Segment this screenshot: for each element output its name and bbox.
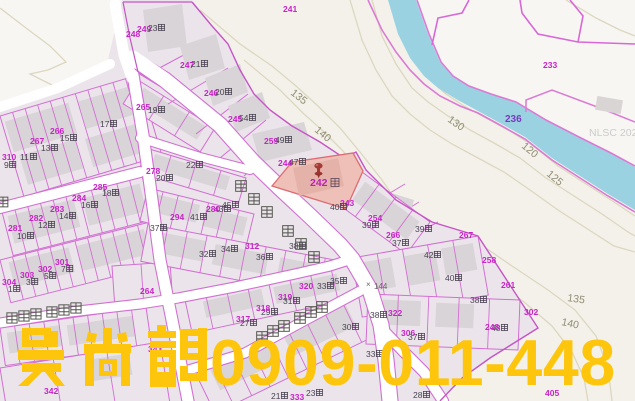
svg-text:317: 317 <box>236 314 250 324</box>
svg-text:39: 39 <box>415 224 425 234</box>
svg-text:54: 54 <box>239 113 249 123</box>
svg-text:304: 304 <box>2 277 16 287</box>
svg-text:17: 17 <box>100 119 110 129</box>
svg-text:312: 312 <box>245 241 259 251</box>
svg-text:45: 45 <box>222 200 232 210</box>
svg-text:0909-011-448: 0909-011-448 <box>210 327 616 399</box>
svg-text:135: 135 <box>567 292 586 306</box>
svg-text:49: 49 <box>275 135 285 145</box>
svg-text:37: 37 <box>150 223 160 233</box>
svg-text:47: 47 <box>289 157 299 167</box>
svg-text:33: 33 <box>317 281 327 291</box>
svg-text:302: 302 <box>524 307 538 317</box>
svg-text:282: 282 <box>29 213 43 223</box>
svg-text:294: 294 <box>170 212 184 222</box>
svg-text:21: 21 <box>191 59 201 69</box>
svg-text:265: 265 <box>136 102 150 112</box>
svg-text:318: 318 <box>256 303 270 313</box>
svg-text:22: 22 <box>186 160 196 170</box>
svg-text:236: 236 <box>505 114 522 125</box>
svg-text:42: 42 <box>424 250 434 260</box>
svg-text:41: 41 <box>190 212 200 222</box>
svg-text:39: 39 <box>362 220 372 230</box>
svg-text:37: 37 <box>392 238 402 248</box>
svg-text:34: 34 <box>221 244 231 254</box>
svg-text:280: 280 <box>206 204 220 214</box>
svg-text:258: 258 <box>482 255 496 265</box>
svg-text:261: 261 <box>501 280 515 290</box>
svg-text:11: 11 <box>20 152 29 162</box>
svg-text:302: 302 <box>38 264 52 274</box>
svg-text:319: 319 <box>278 292 292 302</box>
svg-text:35: 35 <box>330 276 340 286</box>
svg-text:242: 242 <box>310 177 328 189</box>
svg-text:144: 144 <box>374 282 388 291</box>
svg-text:342: 342 <box>44 386 58 396</box>
svg-text:248: 248 <box>126 29 140 39</box>
svg-text:32: 32 <box>199 249 209 259</box>
svg-text:284: 284 <box>72 193 86 203</box>
svg-text:303: 303 <box>20 270 34 280</box>
svg-text:38: 38 <box>370 310 380 320</box>
svg-text:NLSC 2025: NLSC 2025 <box>589 127 635 139</box>
svg-text:40: 40 <box>445 273 455 283</box>
svg-text:×: × <box>366 280 371 289</box>
svg-text:285: 285 <box>93 182 107 192</box>
svg-text:23: 23 <box>148 23 158 33</box>
svg-text:241: 241 <box>283 4 297 14</box>
svg-text:310: 310 <box>2 152 16 162</box>
svg-text:266: 266 <box>50 126 64 136</box>
svg-text:38: 38 <box>470 295 480 305</box>
svg-text:36: 36 <box>256 252 266 262</box>
svg-text:281: 281 <box>8 223 22 233</box>
svg-text:233: 233 <box>543 60 557 70</box>
svg-text:264: 264 <box>140 286 154 296</box>
svg-text:267: 267 <box>459 230 473 240</box>
svg-text:267: 267 <box>30 136 44 146</box>
svg-text:40: 40 <box>330 202 340 212</box>
svg-text:20: 20 <box>215 87 225 97</box>
svg-text:283: 283 <box>50 204 64 214</box>
svg-text:320: 320 <box>299 281 313 291</box>
svg-text:278: 278 <box>146 166 160 176</box>
svg-text:301: 301 <box>55 257 69 267</box>
svg-text:322: 322 <box>388 308 402 318</box>
